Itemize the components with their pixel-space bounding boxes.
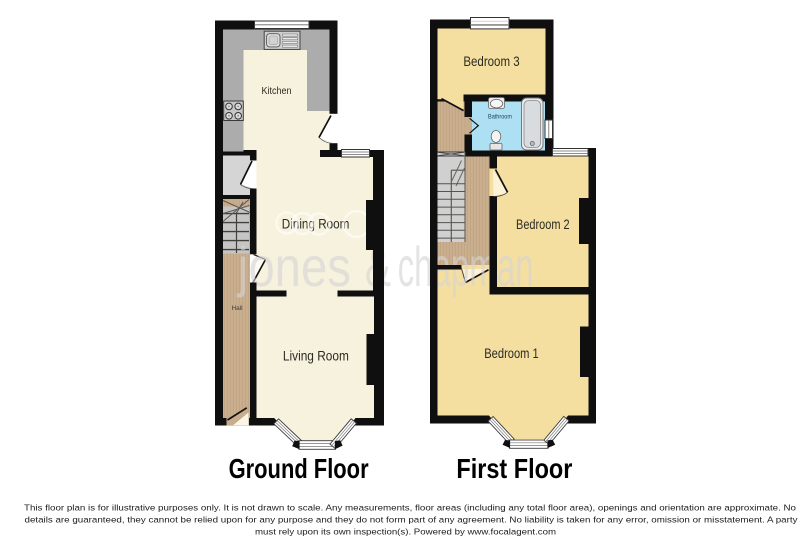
svg-text:Bedroom 1: Bedroom 1 bbox=[484, 345, 539, 361]
svg-text:Bedroom 2: Bedroom 2 bbox=[516, 216, 570, 232]
svg-text:Kitchen: Kitchen bbox=[262, 86, 292, 97]
svg-text:jones: jones bbox=[236, 235, 351, 298]
svg-text:chapman: chapman bbox=[398, 235, 534, 298]
svg-text:Bedroom 3: Bedroom 3 bbox=[463, 53, 519, 69]
svg-text:Hall: Hall bbox=[232, 305, 243, 312]
svg-text:&: & bbox=[365, 235, 391, 298]
svg-text:Living Room: Living Room bbox=[283, 349, 349, 364]
svg-text:Ground Floor: Ground Floor bbox=[229, 453, 369, 484]
svg-text:details are guaranteed, they c: details are guaranteed, they cannot be r… bbox=[25, 514, 799, 524]
svg-text:Bathroom: Bathroom bbox=[488, 114, 512, 121]
svg-text:First Floor: First Floor bbox=[456, 453, 572, 484]
svg-text:This floor plan is for illustr: This floor plan is for illustrative purp… bbox=[24, 502, 796, 512]
svg-text:must rely upon its own inspect: must rely upon its own inspection(s). Po… bbox=[255, 526, 556, 536]
